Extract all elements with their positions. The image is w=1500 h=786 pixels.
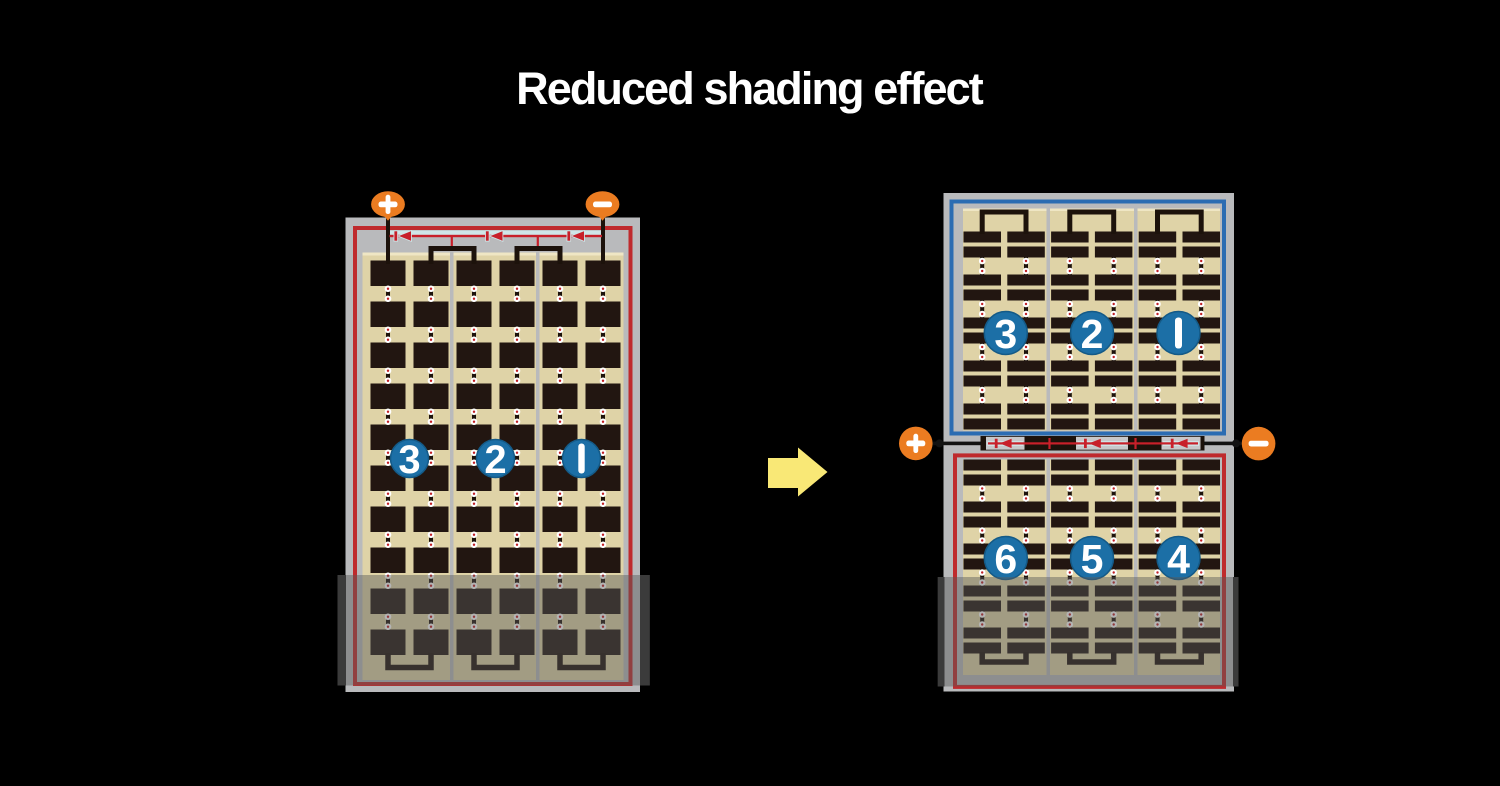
svg-text:5: 5 — [1081, 536, 1104, 582]
svg-text:6: 6 — [994, 536, 1017, 582]
svg-text:2: 2 — [1081, 311, 1104, 357]
svg-text:Reduced shading effect: Reduced shading effect — [516, 63, 984, 114]
svg-text:4: 4 — [1167, 536, 1190, 582]
svg-text:2: 2 — [484, 438, 506, 482]
svg-text:3: 3 — [994, 311, 1017, 357]
svg-text:3: 3 — [398, 438, 420, 482]
